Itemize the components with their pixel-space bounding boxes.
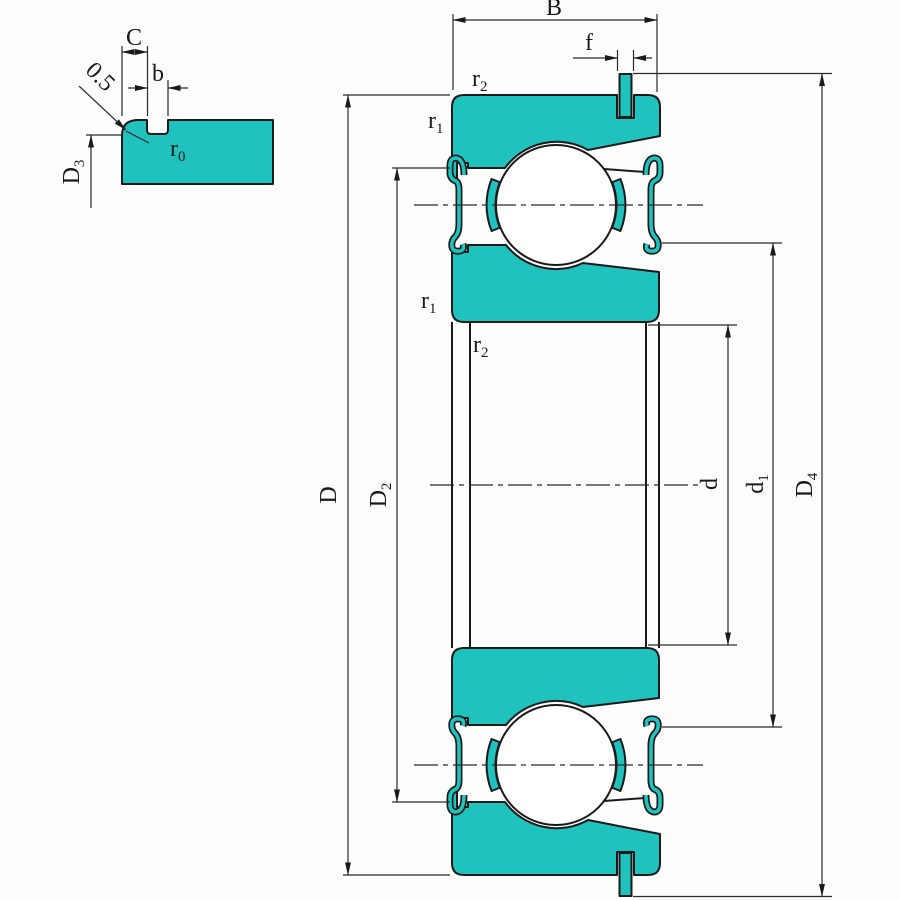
bearing-lower-section <box>450 648 660 896</box>
label-B: B <box>546 0 562 21</box>
detail-label-chamfer: 0.5 <box>80 57 120 97</box>
detail-label-C: C <box>126 25 142 51</box>
label-r1-inner: r1 <box>421 288 437 317</box>
label-r2-inner: r2 <box>473 332 489 361</box>
bearing-upper-section <box>450 74 660 322</box>
snap-ring-section <box>620 74 632 117</box>
main-view-bearing-section: B f r2 r1 r1 r2 D D2 <box>316 0 832 897</box>
label-D2: D2 <box>366 483 395 508</box>
label-d: d <box>697 478 723 490</box>
detail-label-b: b <box>152 61 164 87</box>
label-r2-top: r2 <box>472 66 488 95</box>
label-r1-top: r1 <box>428 108 444 137</box>
detail-ring-section <box>122 120 273 184</box>
label-D: D <box>316 486 342 503</box>
label-D4: D4 <box>792 472 821 497</box>
detail-view-snap-ring-groove: C b 0.5 r0 D3 <box>59 25 273 208</box>
detail-label-D3: D3 <box>59 160 88 185</box>
drawing-canvas: C b 0.5 r0 D3 <box>0 0 900 900</box>
bearing-technical-drawing: C b 0.5 r0 D3 <box>0 0 900 900</box>
label-d1: d1 <box>743 474 772 494</box>
label-f: f <box>585 30 593 56</box>
outer-ring-relief-edge <box>604 169 645 172</box>
